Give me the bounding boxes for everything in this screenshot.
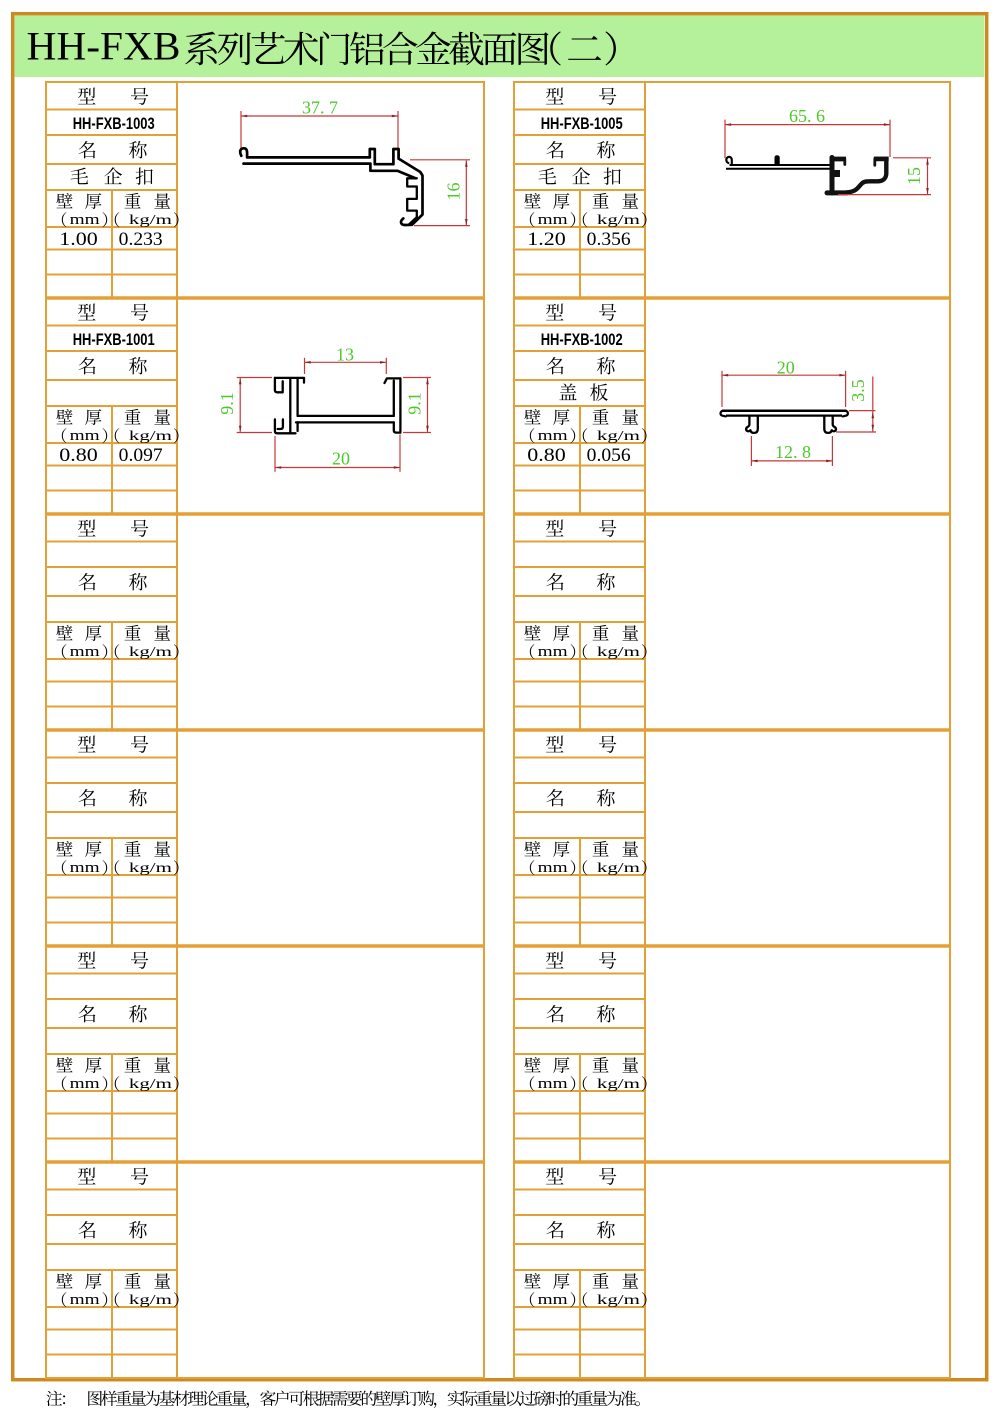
svg-text:mm: mm [538,644,569,660]
svg-text:0.80: 0.80 [527,445,566,466]
svg-text:HH-FXB-1005: HH-FXB-1005 [541,115,623,133]
svg-text:kg/m: kg/m [129,213,172,228]
svg-text:0.097: 0.097 [119,445,163,466]
svg-text:mm: mm [538,1076,569,1092]
svg-text:37. 7: 37. 7 [302,98,338,118]
svg-text:20: 20 [332,449,350,469]
svg-text:mm: mm [70,644,101,660]
svg-text:3.5: 3.5 [848,379,868,402]
svg-text:mm: mm [70,1292,101,1308]
svg-text:0.233: 0.233 [119,229,163,250]
svg-text:HH-FXB-1001: HH-FXB-1001 [73,331,155,349]
svg-text:kg/m: kg/m [597,645,640,660]
svg-text:9.1: 9.1 [404,392,424,415]
svg-text:mm: mm [538,860,569,876]
svg-text:kg/m: kg/m [129,645,172,660]
svg-text:mm: mm [70,1076,101,1092]
svg-text:1.20: 1.20 [527,229,566,250]
svg-text:15: 15 [904,167,924,185]
svg-text:16: 16 [444,183,464,201]
svg-text:1.00: 1.00 [59,229,98,250]
svg-text:HH-FXB: HH-FXB [27,23,181,68]
svg-text:kg/m: kg/m [129,1077,172,1092]
svg-text:12. 8: 12. 8 [775,442,811,462]
svg-text:kg/m: kg/m [597,213,640,228]
svg-text:HH-FXB-1003: HH-FXB-1003 [73,115,155,133]
svg-text:kg/m: kg/m [597,1293,640,1308]
svg-text:mm: mm [538,1292,569,1308]
svg-text:mm: mm [70,860,101,876]
svg-text:13: 13 [336,345,354,365]
svg-text:65. 6: 65. 6 [789,106,825,126]
svg-text:20: 20 [777,358,795,378]
svg-text:mm: mm [70,428,101,444]
svg-text:mm: mm [538,428,569,444]
svg-text:kg/m: kg/m [129,861,172,876]
svg-text:mm: mm [70,212,101,228]
svg-text:mm: mm [538,212,569,228]
svg-text:0.356: 0.356 [587,229,631,250]
svg-text:kg/m: kg/m [129,1293,172,1308]
svg-text:0.80: 0.80 [59,445,98,466]
svg-text:9.1: 9.1 [217,392,237,415]
svg-text:0.056: 0.056 [587,445,631,466]
svg-text:kg/m: kg/m [597,429,640,444]
svg-text:kg/m: kg/m [597,1077,640,1092]
svg-text:kg/m: kg/m [129,429,172,444]
svg-text:HH-FXB-1002: HH-FXB-1002 [541,331,623,349]
svg-text:kg/m: kg/m [597,861,640,876]
